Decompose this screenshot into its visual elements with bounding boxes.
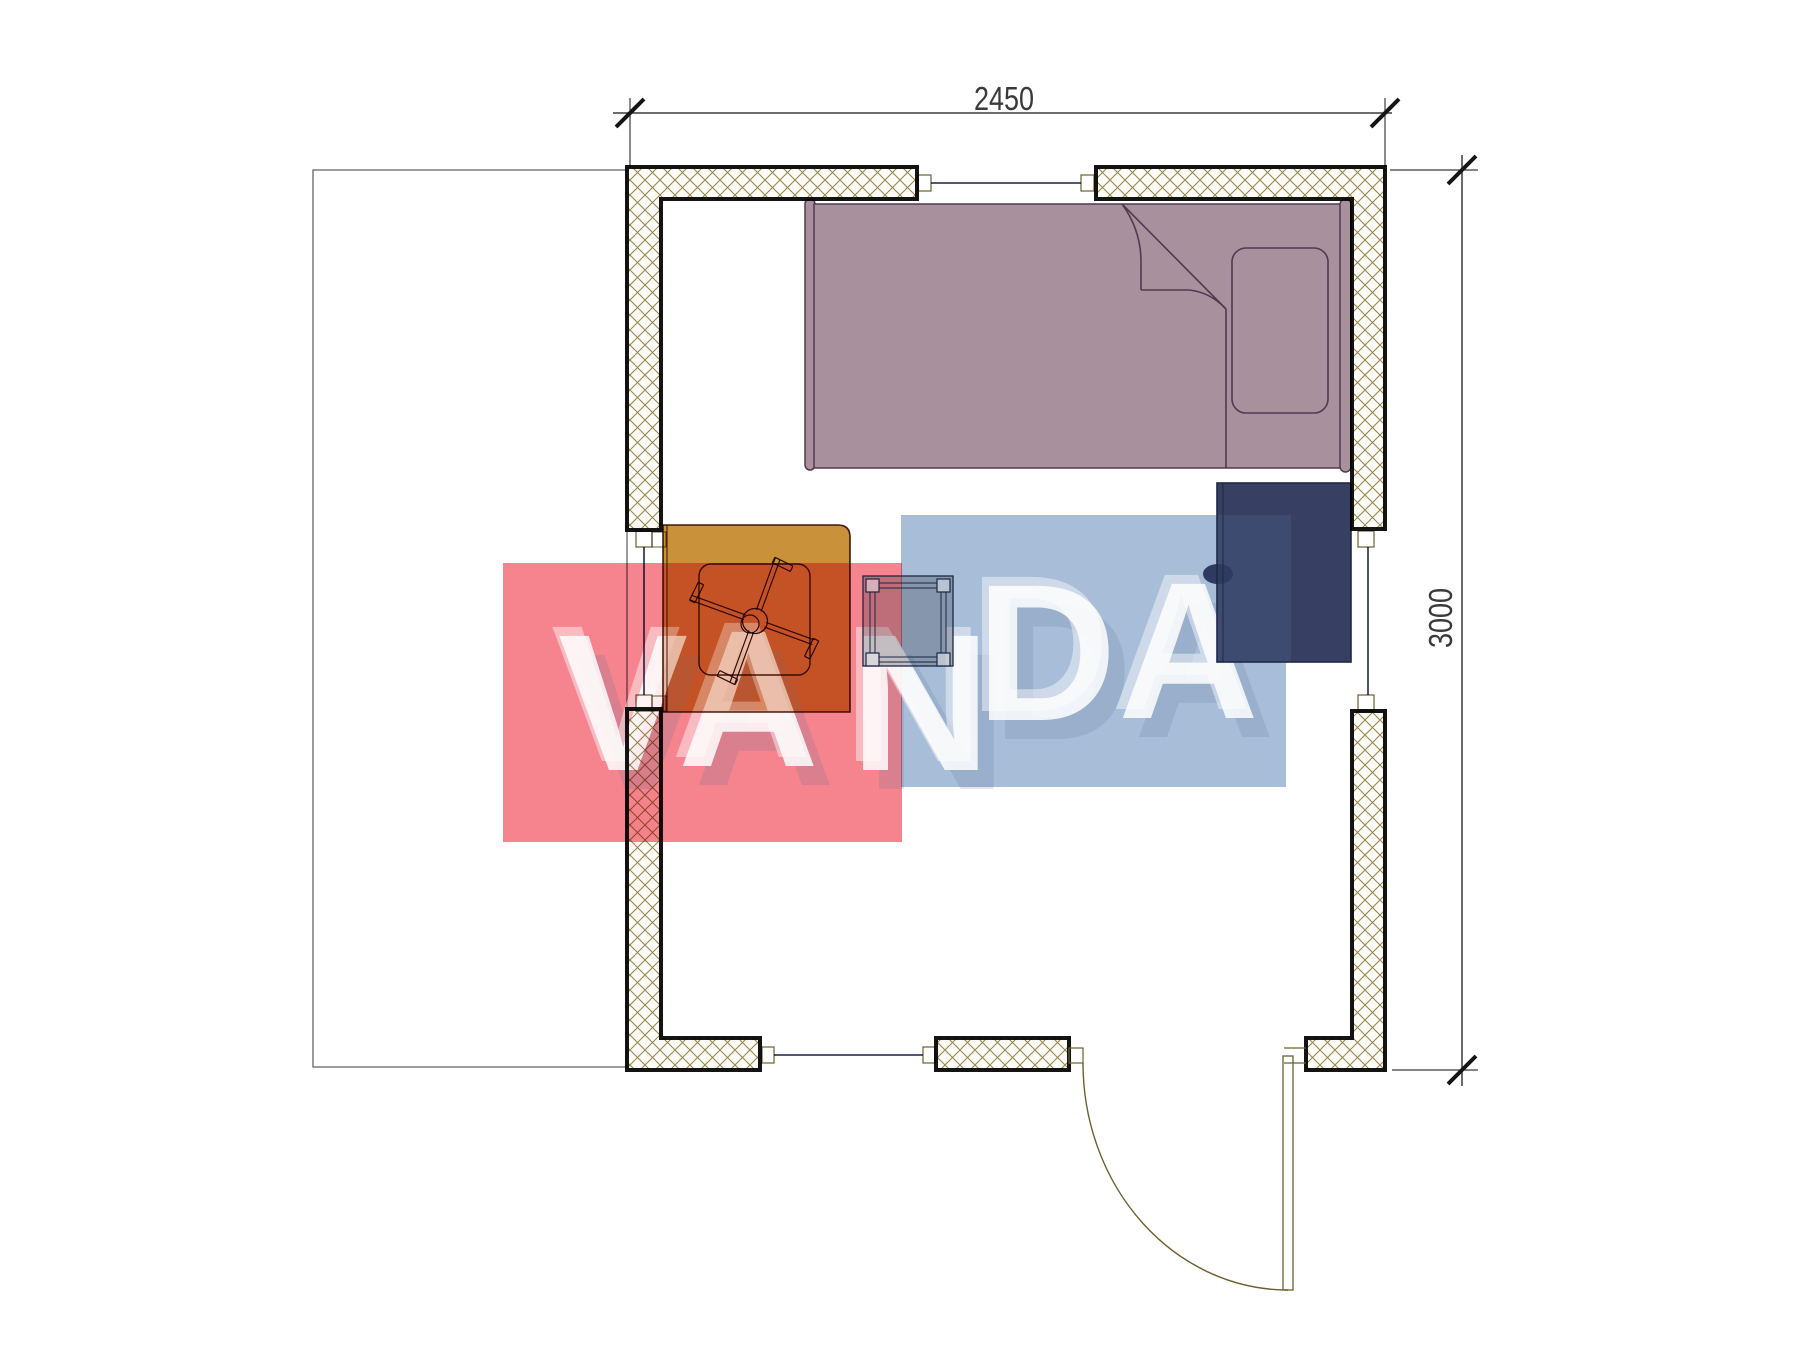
svg-text:D: D — [976, 544, 1117, 762]
svg-text:2450: 2450 — [974, 80, 1034, 117]
svg-text:3000: 3000 — [1422, 588, 1459, 648]
